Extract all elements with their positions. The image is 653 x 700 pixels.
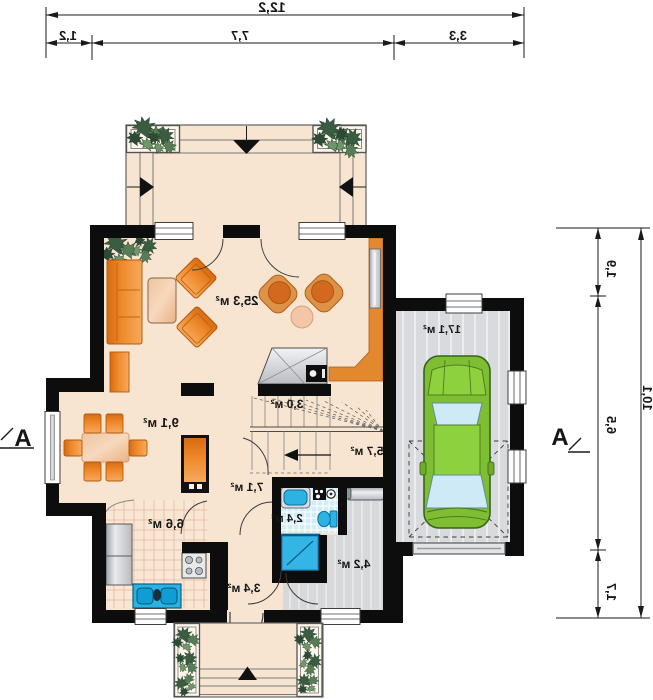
svg-text:10,1: 10,1	[640, 385, 653, 410]
svg-text:2,4 м²: 2,4 м²	[271, 513, 303, 525]
svg-text:1,2: 1,2	[59, 28, 77, 43]
svg-text:17,1 м²: 17,1 м²	[423, 324, 461, 336]
svg-text:7,1 м²: 7,1 м²	[231, 480, 264, 494]
svg-text:3,4 м²: 3,4 м²	[228, 581, 261, 595]
svg-text:1,9: 1,9	[604, 260, 619, 278]
svg-text:9,1 м²: 9,1 м²	[143, 415, 179, 430]
svg-text:1,7: 1,7	[604, 583, 619, 601]
svg-text:12,2: 12,2	[258, 0, 285, 15]
svg-text:5,7 м²: 5,7 м²	[351, 444, 384, 458]
svg-text:3,3: 3,3	[449, 28, 467, 43]
svg-text:25,3 м²: 25,3 м²	[215, 293, 259, 308]
svg-text:A: A	[551, 424, 568, 451]
svg-text:6,6 м²: 6,6 м²	[148, 516, 184, 531]
svg-text:3,0 м²: 3,0 м²	[271, 397, 304, 411]
svg-text:4,2 м²: 4,2 м²	[338, 557, 371, 571]
svg-text:6,5: 6,5	[604, 416, 619, 434]
svg-text:7,7: 7,7	[231, 28, 249, 43]
